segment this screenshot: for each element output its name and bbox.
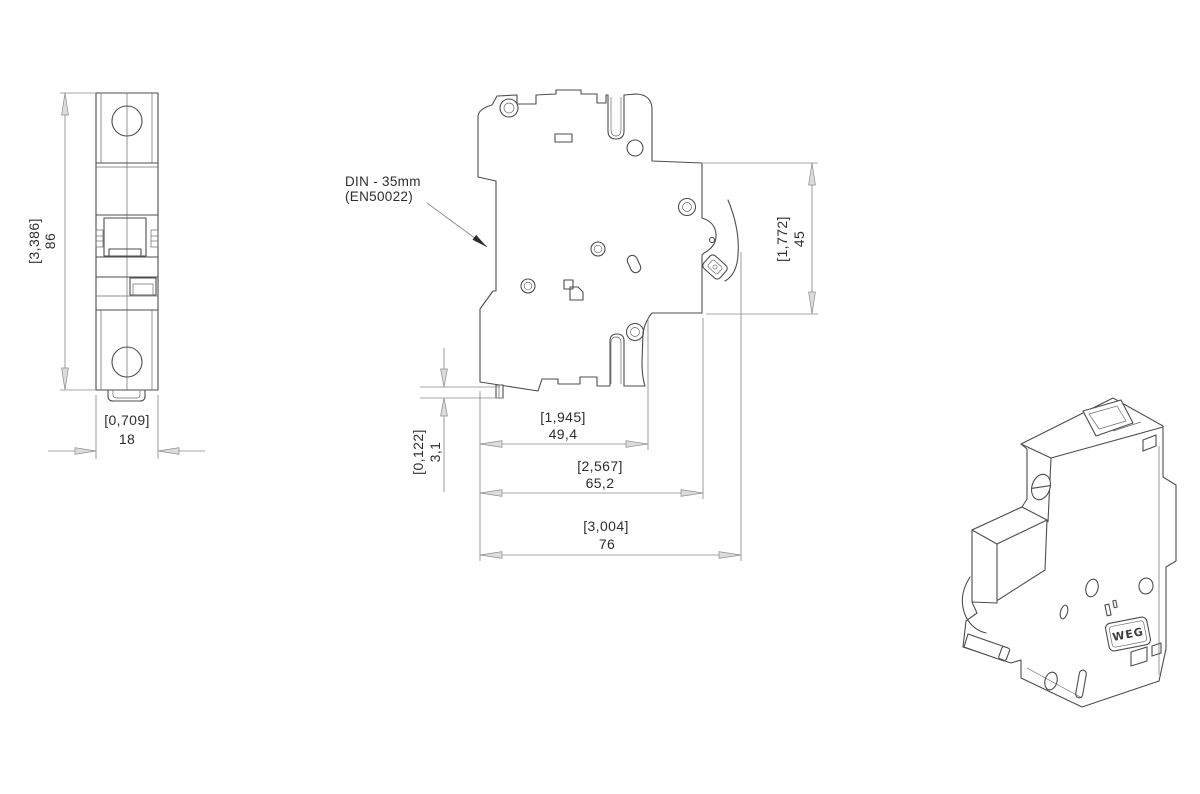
dimension-depth-body: [2,567] 65,2: [480, 318, 703, 499]
depth-total-inch: [3,004]: [583, 518, 629, 534]
din-label-line1: DIN - 35mm: [345, 174, 421, 189]
side-view-outline: [478, 90, 716, 391]
panel-height-inch: [1,772]: [774, 216, 790, 262]
depth-front-mm: 49,4: [549, 426, 578, 442]
front-height-inch: [3,386]: [26, 218, 42, 264]
front-width-mm: 18: [119, 431, 135, 447]
front-bottom-clip-tab: [108, 390, 145, 401]
side-toggle-pivot: [701, 200, 738, 281]
dimension-front-height: [3,386] 86: [26, 93, 96, 390]
side-screw-boss: [500, 99, 518, 117]
clip-tab-mm: 3,1: [427, 442, 443, 463]
circuit-breaker-dimension-drawing: [3,386] 86 [0,709] 18: [0, 0, 1200, 794]
side-rivet-circles: [521, 140, 696, 341]
isometric-view: WEG: [962, 398, 1176, 707]
dimension-panel-height: [1,772] 45: [703, 163, 818, 314]
panel-height-mm: 45: [791, 231, 807, 247]
din-rail-annotation: DIN - 35mm (EN50022): [345, 174, 487, 247]
depth-front-inch: [1,945]: [540, 409, 586, 425]
side-pill-slot: [626, 254, 643, 275]
front-width-inch: [0,709]: [104, 412, 150, 428]
depth-body-mm: 65,2: [586, 475, 615, 491]
technical-drawing-page: [3,386] 86 [0,709] 18: [0, 0, 1200, 794]
front-height-mm: 86: [42, 233, 58, 249]
depth-total-mm: 76: [599, 536, 615, 552]
front-view: [3,386] 86 [0,709] 18: [26, 93, 205, 459]
dimension-clip-tab: [0,122] 3,1: [410, 348, 504, 492]
side-view: DIN - 35mm (EN50022) [1,945] 49,4 [2,567…: [345, 90, 818, 561]
front-test-button: [130, 278, 156, 295]
depth-body-inch: [2,567]: [577, 458, 623, 474]
side-latch-detail: [564, 280, 583, 300]
clip-tab-inch: [0,122]: [410, 429, 426, 475]
side-vent-slot: [555, 134, 572, 142]
din-label-line2: (EN50022): [345, 189, 413, 204]
dimension-front-width: [0,709] 18: [48, 395, 205, 459]
iso-body: [963, 398, 1176, 707]
front-view-outline: [96, 93, 158, 390]
